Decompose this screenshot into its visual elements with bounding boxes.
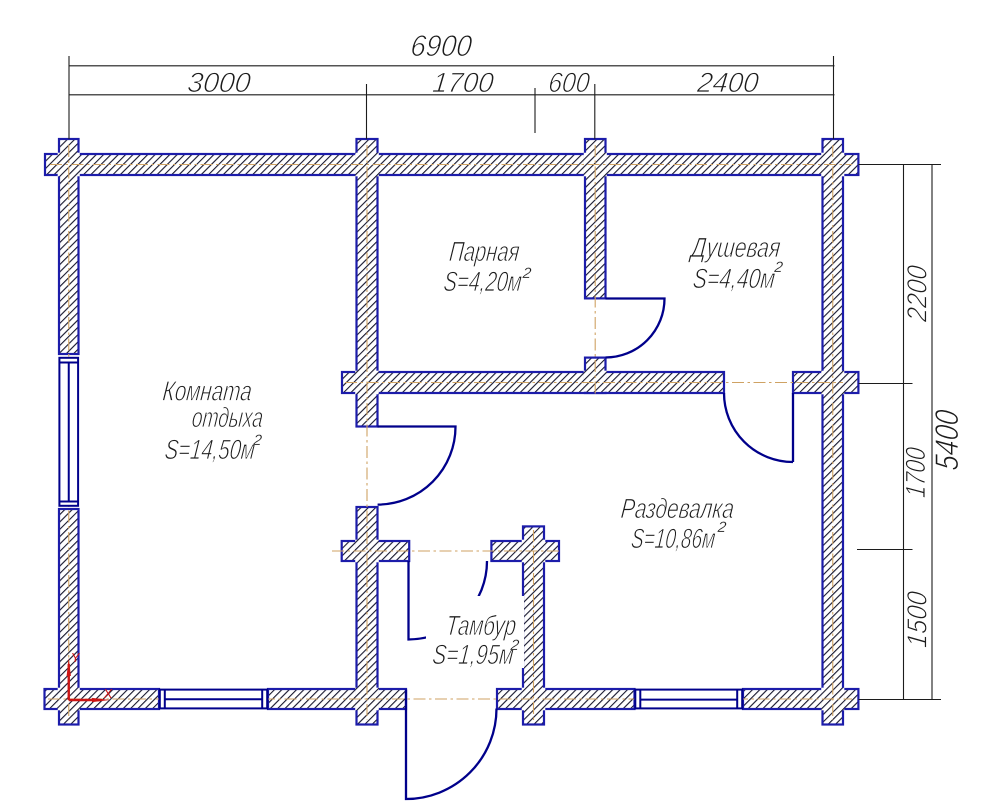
svg-text:2200: 2200 xyxy=(902,263,933,323)
svg-text:S=4,40м: S=4,40м xyxy=(692,263,777,294)
svg-text:Тамбур: Тамбур xyxy=(445,610,518,641)
svg-text:5400: 5400 xyxy=(929,408,966,472)
svg-text:2400: 2400 xyxy=(695,67,761,98)
svg-text:600: 600 xyxy=(547,67,592,98)
svg-text:S=10,86м: S=10,86м xyxy=(630,523,717,554)
svg-text:6900: 6900 xyxy=(409,30,474,63)
svg-text:S=1,95м: S=1,95м xyxy=(431,639,515,670)
svg-text:1500: 1500 xyxy=(902,589,933,649)
svg-text:S=14,50м: S=14,50м xyxy=(163,434,256,465)
svg-text:1700: 1700 xyxy=(431,67,496,98)
svg-text:S=4,20м: S=4,20м xyxy=(442,266,523,297)
svg-text:Душевая: Душевая xyxy=(688,232,783,263)
svg-text:Парная: Парная xyxy=(448,236,521,267)
svg-text:отдыха: отдыха xyxy=(191,402,265,433)
svg-text:1700: 1700 xyxy=(900,445,931,499)
svg-text:3000: 3000 xyxy=(186,67,253,98)
